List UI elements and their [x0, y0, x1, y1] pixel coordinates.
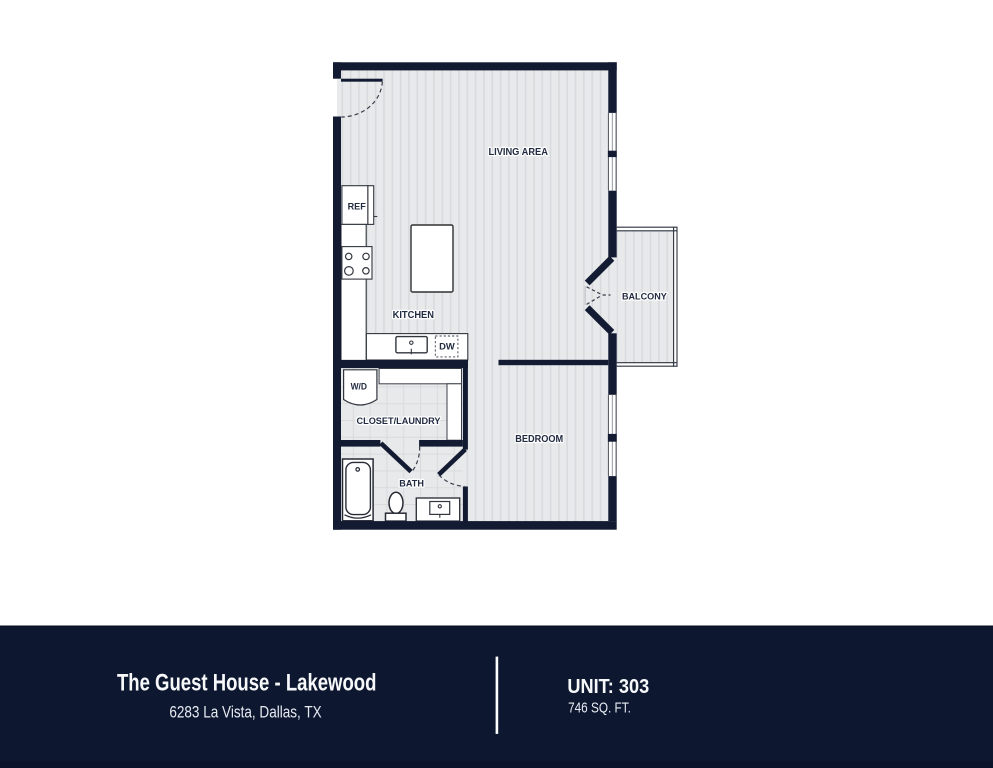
- svg-text:W/D: W/D: [351, 381, 368, 391]
- svg-text:6283 La Vista, Dallas, TX: 6283 La Vista, Dallas, TX: [169, 702, 321, 721]
- svg-text:CLOSET/LAUNDRY: CLOSET/LAUNDRY: [357, 416, 442, 427]
- svg-text:BATH: BATH: [399, 479, 424, 489]
- svg-text:UNIT: 303: UNIT: 303: [567, 676, 649, 698]
- svg-text:KITCHEN: KITCHEN: [393, 310, 434, 321]
- svg-text:BALCONY: BALCONY: [622, 291, 668, 302]
- svg-text:DW: DW: [439, 342, 455, 352]
- svg-text:746 SQ. FT.: 746 SQ. FT.: [568, 700, 631, 716]
- svg-text:BEDROOM: BEDROOM: [515, 434, 563, 445]
- svg-text:REF: REF: [348, 201, 367, 211]
- svg-text:LIVING AREA: LIVING AREA: [488, 147, 548, 158]
- svg-text:The Guest House - Lakewood: The Guest House - Lakewood: [117, 669, 377, 696]
